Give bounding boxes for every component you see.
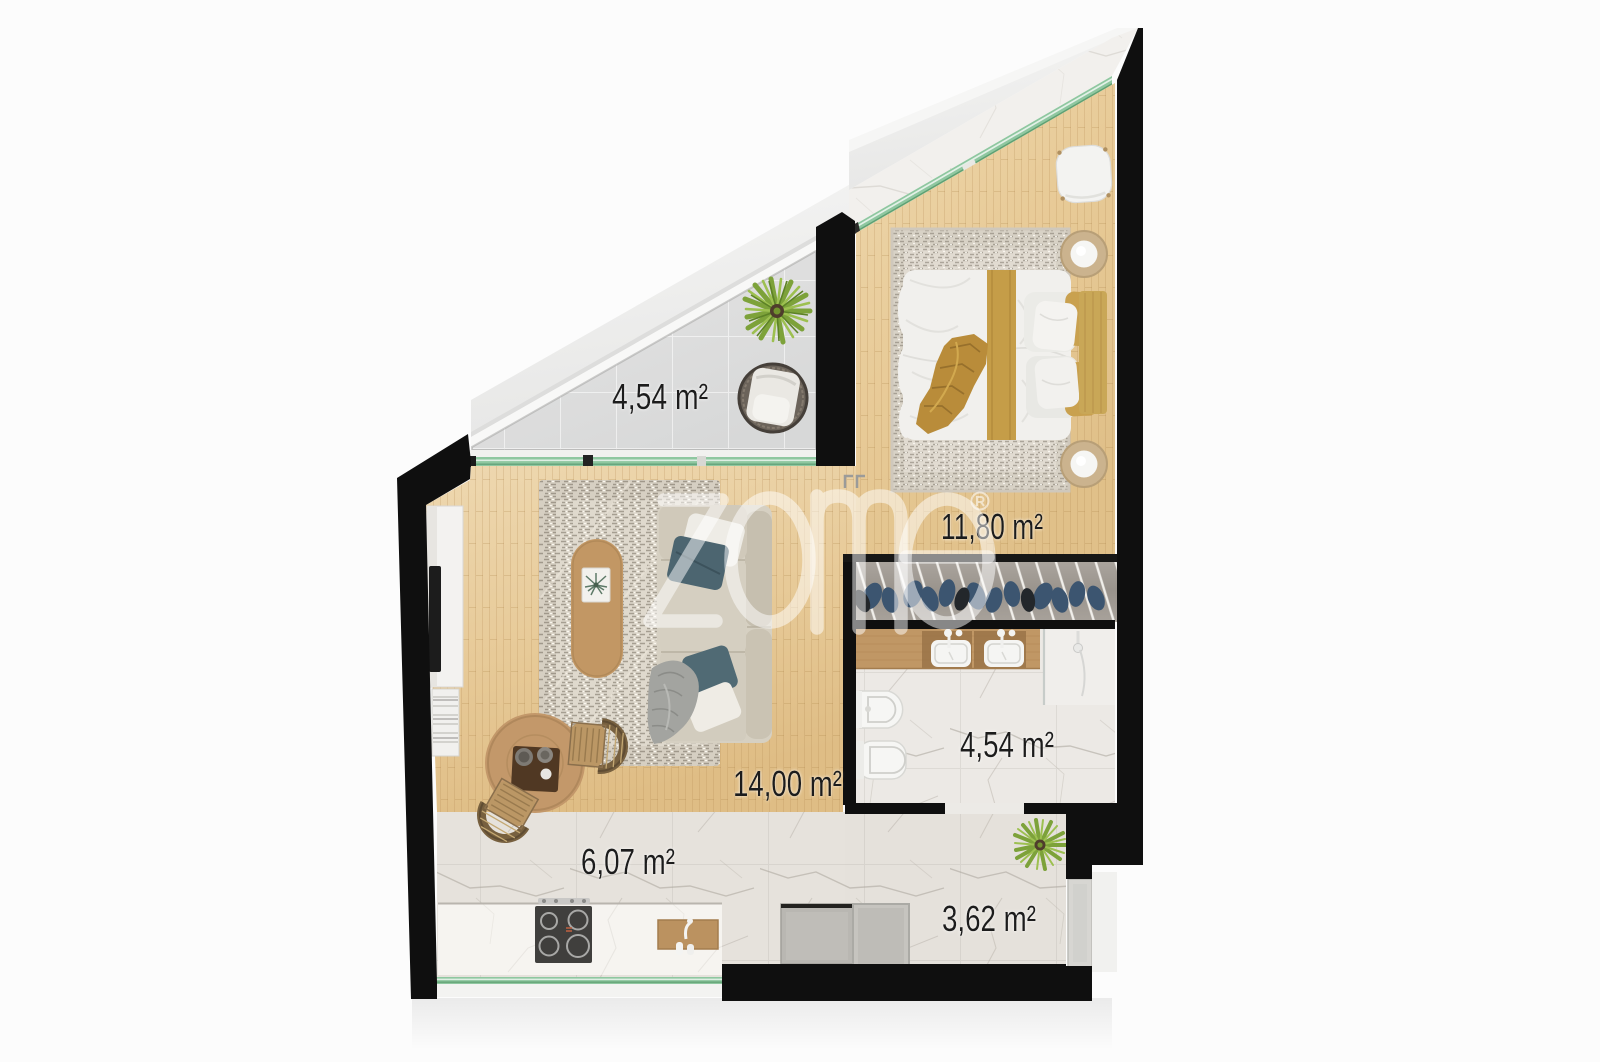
svg-text:6,07 m²: 6,07 m² [581,841,675,882]
svg-text:4,54 m²: 4,54 m² [612,376,708,417]
svg-text:4,54 m²: 4,54 m² [960,724,1054,765]
svg-text:3,62 m²: 3,62 m² [942,898,1036,939]
svg-text:14,00 m²: 14,00 m² [733,763,842,804]
